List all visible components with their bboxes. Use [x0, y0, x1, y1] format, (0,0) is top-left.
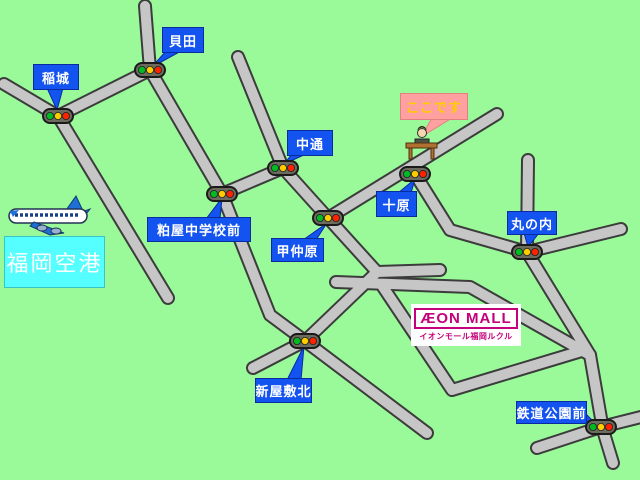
map-label-tetsudo-koen-mae: 鉄道公園前 [516, 401, 587, 424]
traffic-light-nakadori [268, 161, 298, 175]
airplane-icon [9, 196, 90, 235]
map-label-kasuya-chugakko-mae: 粕屋中学校前 [147, 217, 251, 242]
traffic-light-inagi [43, 109, 73, 123]
route-map: 稲城 貝田 中通 粕屋中学校前 甲仲原 十原 丸の内 新屋敷北 鉄道公園前 ここ… [0, 0, 640, 480]
traffic-light-tohara [400, 167, 430, 181]
traffic-light-kasuya [207, 187, 237, 201]
traffic-light-marunouchi [512, 245, 542, 259]
aeon-brand-text: ÆON MALL [414, 308, 517, 329]
aeon-subtitle-text: イオンモール福岡ルクル [419, 331, 512, 342]
airport-label: 福岡空港 [4, 236, 105, 288]
traffic-light-konakabaru [313, 211, 343, 225]
map-label-marunouchi: 丸の内 [507, 211, 557, 235]
traffic-light-shinyashiki [290, 334, 320, 348]
here-bubble: ここです [400, 93, 468, 120]
map-label-tohara: 十原 [376, 191, 417, 217]
map-label-nakadori: 中通 [287, 130, 333, 156]
traffic-light-kaida [135, 63, 165, 77]
map-label-shinyashiki-kita: 新屋敷北 [255, 378, 312, 403]
traffic-light-tetsudo [586, 420, 616, 434]
map-label-kaida: 貝田 [162, 27, 204, 53]
map-label-konakabaru: 甲仲原 [271, 238, 324, 262]
map-label-inagi: 稲城 [33, 64, 79, 90]
aeon-mall-logo: ÆON MALL イオンモール福岡ルクル [411, 304, 521, 346]
